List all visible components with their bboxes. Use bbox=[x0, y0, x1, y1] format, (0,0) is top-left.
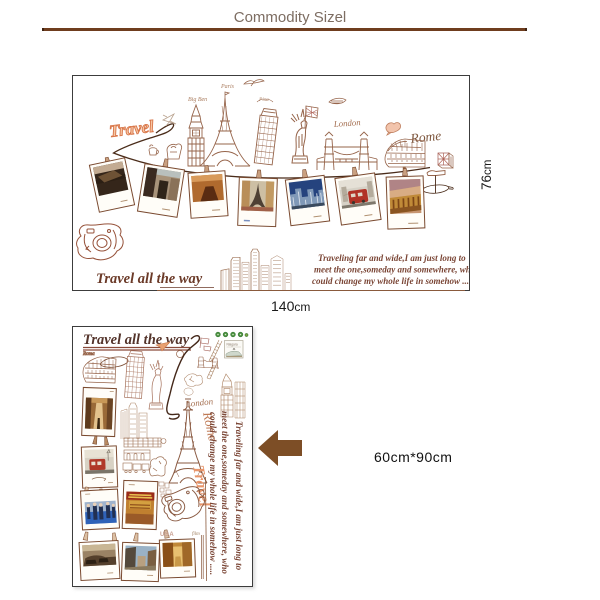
svg-text:Big Ben: Big Ben bbox=[188, 97, 207, 103]
svg-text:Traveling far and wide,I am ju: Traveling far and wide,I am just long to bbox=[234, 421, 244, 571]
svg-text:London: London bbox=[332, 117, 361, 129]
svg-text:Traveling far and wide,I am ju: Traveling far and wide,I am just long to bbox=[318, 253, 466, 263]
svg-text:meet the one,someday and somew: meet the one,someday and somewhere, who bbox=[314, 264, 469, 274]
svg-text:meet the one,someday and somew: meet the one,someday and somewhere, who bbox=[220, 411, 230, 574]
svg-text:film: film bbox=[192, 532, 200, 537]
svg-text:Paris: Paris bbox=[220, 84, 235, 90]
svg-text:Roma: Roma bbox=[82, 352, 95, 357]
svg-text:could change my whole life in: could change my whole life in somehow ..… bbox=[208, 412, 218, 575]
svg-text:Travel: Travel bbox=[108, 116, 155, 140]
svg-text:Niagara: Niagara bbox=[227, 342, 238, 346]
svg-text:Travel all the way: Travel all the way bbox=[96, 271, 203, 287]
svg-text:USA: USA bbox=[160, 532, 174, 538]
svg-text:could change my whole life in: could change my whole life in somehow ..… bbox=[312, 276, 469, 286]
svg-text:Travel all the way: Travel all the way bbox=[83, 332, 190, 348]
svg-text:Pisa: Pisa bbox=[258, 97, 269, 103]
